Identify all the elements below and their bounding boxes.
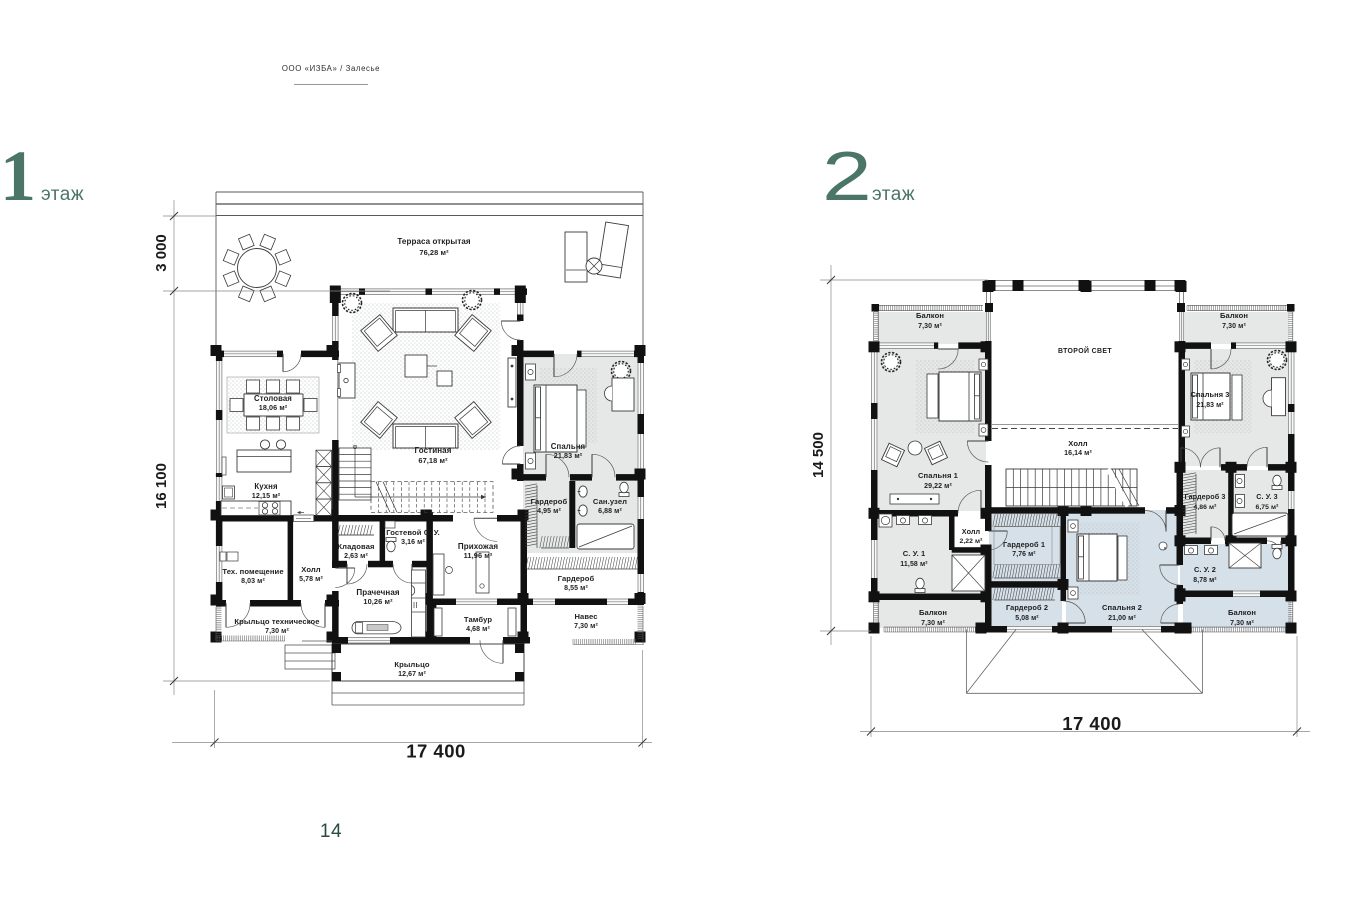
svg-text:8,03 м²: 8,03 м² [241,578,265,585]
svg-text:67,18 м²: 67,18 м² [418,456,448,465]
svg-text:Терраса открытая: Терраса открытая [397,237,471,246]
svg-text:4,86 м²: 4,86 м² [1193,504,1217,511]
svg-text:21,83 м²: 21,83 м² [554,451,583,460]
svg-text:Навес: Навес [574,612,597,621]
svg-text:29,22 м²: 29,22 м² [924,483,952,490]
svg-text:5,78 м²: 5,78 м² [299,576,323,583]
svg-text:Гардероб 2: Гардероб 2 [1006,603,1048,612]
svg-text:Прихожая: Прихожая [458,542,499,551]
svg-text:2,22 м²: 2,22 м² [959,538,983,545]
svg-text:7,30 м²: 7,30 м² [574,623,598,630]
svg-text:16,14 м²: 16,14 м² [1064,450,1092,457]
svg-text:76,28 м²: 76,28 м² [419,248,449,257]
svg-text:7,76 м²: 7,76 м² [1012,551,1036,558]
svg-text:6,75 м²: 6,75 м² [1255,504,1279,511]
svg-text:Холл: Холл [301,565,321,574]
svg-text:Гардероб 3: Гардероб 3 [1185,492,1226,501]
svg-text:4,68 м²: 4,68 м² [466,626,490,633]
svg-text:10,26 м²: 10,26 м² [363,597,393,606]
svg-text:Балкон: Балкон [1220,311,1248,320]
svg-text:21,00 м²: 21,00 м² [1108,615,1136,622]
svg-text:7,30 м²: 7,30 м² [1222,323,1246,330]
svg-text:4,95 м²: 4,95 м² [537,508,561,515]
svg-text:11,96 м²: 11,96 м² [464,551,493,560]
svg-text:Кухня: Кухня [254,482,277,491]
svg-text:14: 14 [320,821,342,842]
svg-text:ООО «ИЗБА» / Залесье: ООО «ИЗБА» / Залесье [282,64,380,73]
svg-text:Спальня: Спальня [551,442,585,451]
svg-text:7,30 м²: 7,30 м² [918,323,942,330]
svg-text:Гардероб: Гардероб [531,497,568,506]
svg-text:Спальня 2: Спальня 2 [1102,603,1142,612]
svg-text:Гардероб: Гардероб [558,574,595,583]
svg-text:С. У. 3: С. У. 3 [1256,492,1277,501]
svg-text:этаж: этаж [41,184,84,205]
svg-text:7,30 м²: 7,30 м² [1230,620,1254,627]
svg-text:Крыльцо: Крыльцо [394,660,430,669]
svg-text:17 400: 17 400 [406,741,466,762]
svg-text:Балкон: Балкон [919,608,947,617]
svg-text:17 400: 17 400 [1062,713,1122,734]
svg-text:Гостиная: Гостиная [415,446,452,455]
svg-text:8,55 м²: 8,55 м² [564,585,588,592]
svg-text:7,30 м²: 7,30 м² [921,620,945,627]
svg-text:Тех. помещение: Тех. помещение [222,567,283,576]
svg-text:16 100: 16 100 [153,463,170,509]
svg-text:Прачечная: Прачечная [356,588,400,597]
svg-text:Тамбур: Тамбур [464,615,492,624]
svg-text:21,83 м²: 21,83 м² [1196,402,1224,409]
svg-text:Гардероб 1: Гардероб 1 [1003,540,1045,549]
svg-text:7,30 м²: 7,30 м² [265,628,289,635]
svg-text:8,78 м²: 8,78 м² [1193,577,1217,584]
svg-text:этаж: этаж [872,184,915,205]
svg-text:Кладовая: Кладовая [337,542,374,551]
svg-text:18,06 м²: 18,06 м² [259,403,288,412]
svg-text:3 000: 3 000 [153,234,170,272]
svg-text:11,58 м²: 11,58 м² [900,561,928,568]
svg-text:ВТОРОЙ СВЕТ: ВТОРОЙ СВЕТ [1058,346,1112,355]
svg-text:Балкон: Балкон [916,311,944,320]
svg-text:Сан.узел: Сан.узел [593,497,627,506]
svg-text:Столовая: Столовая [254,394,292,403]
svg-text:14 500: 14 500 [810,432,827,478]
svg-text:2: 2 [822,137,872,215]
svg-text:5,08 м²: 5,08 м² [1015,615,1039,622]
svg-text:Спальня 1: Спальня 1 [918,471,959,480]
svg-text:12,15 м²: 12,15 м² [252,491,281,500]
svg-text:1: 1 [0,136,36,216]
svg-text:Холл: Холл [1068,439,1088,448]
svg-text:Гостевой С. У.: Гостевой С. У. [386,528,440,537]
svg-text:Балкон: Балкон [1228,608,1256,617]
svg-text:3,16 м²: 3,16 м² [401,539,425,546]
svg-text:6,88 м²: 6,88 м² [598,508,622,515]
svg-text:2,63 м²: 2,63 м² [344,553,368,560]
svg-text:С. У. 1: С. У. 1 [903,549,926,558]
svg-text:Крыльцо техническое: Крыльцо техническое [234,617,319,626]
svg-text:С. У. 2: С. У. 2 [1194,565,1216,574]
svg-text:Холл: Холл [962,527,981,536]
svg-text:Спальня 3: Спальня 3 [1191,390,1230,399]
svg-text:12,67 м²: 12,67 м² [398,671,426,678]
